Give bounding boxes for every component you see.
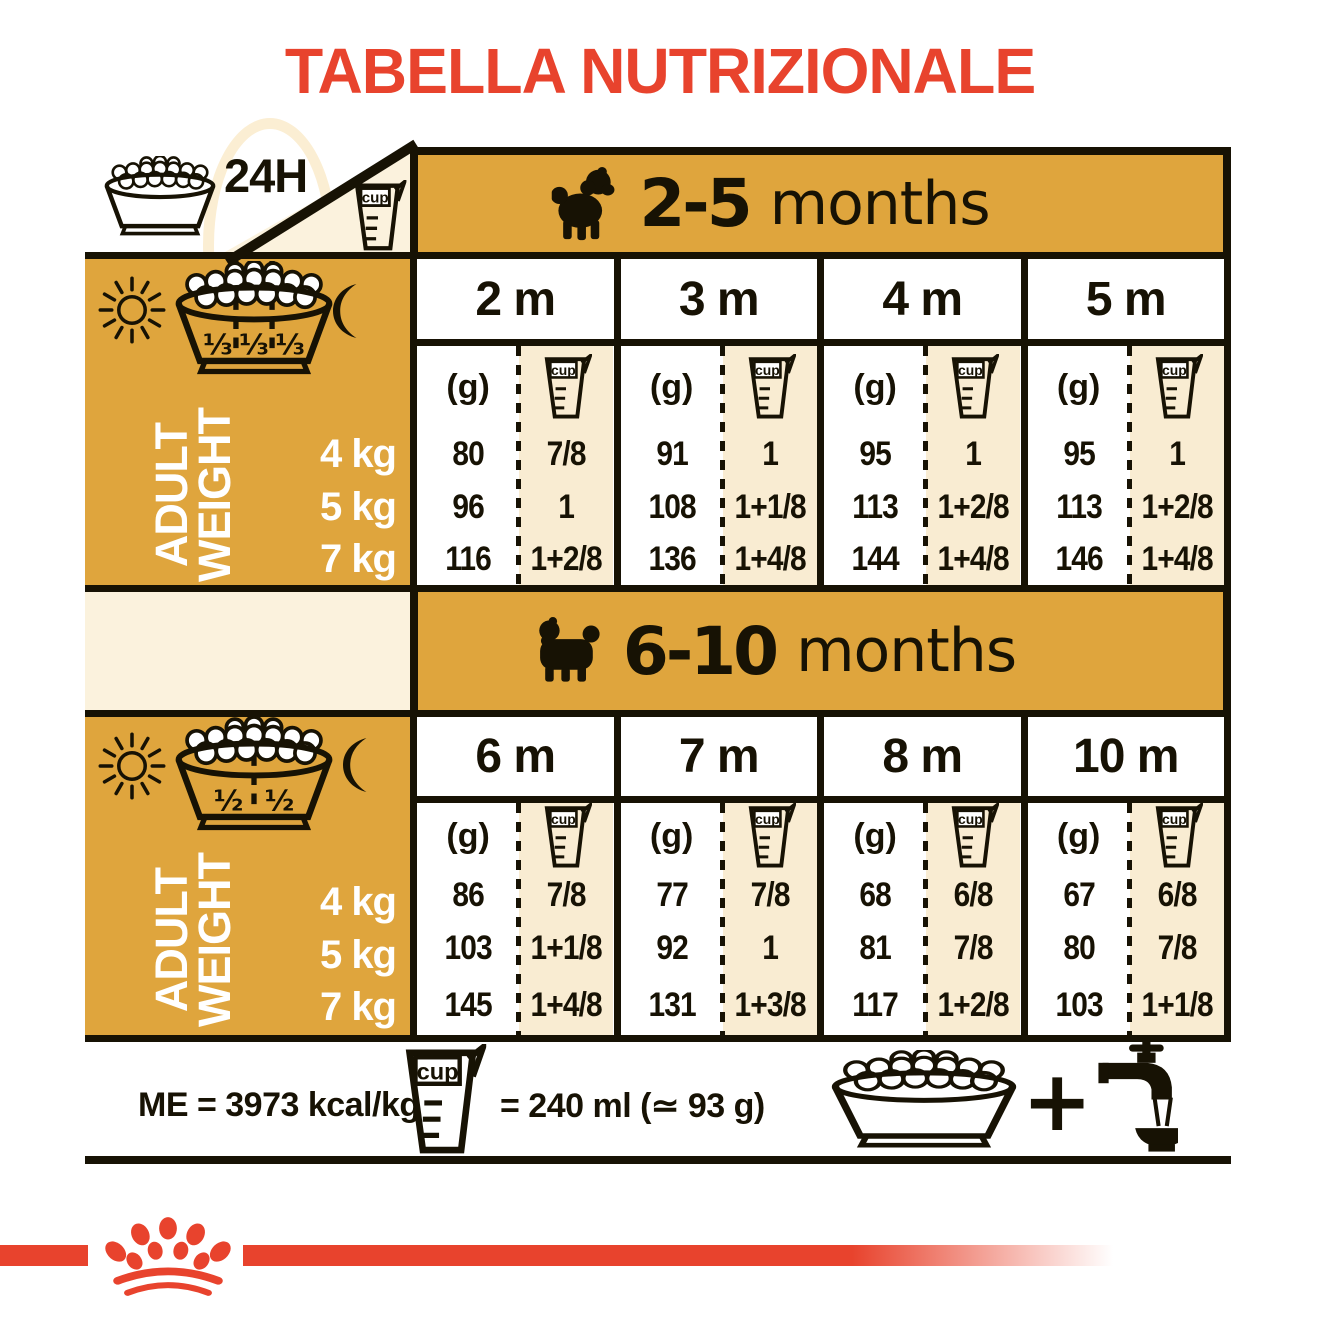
cups-value: 1+2/8 [932,975,1015,1035]
cups-value: 6/8 [932,869,1015,922]
measuring-cup-icon [396,1044,488,1156]
adult-weight-line2: WEIGHT [194,850,237,1030]
grams-value: 131 [627,975,717,1035]
grams-value: 145 [423,975,513,1035]
water-tap-icon [1076,1038,1178,1156]
grams-value: 108 [627,481,717,534]
cups-value: 1+2/8 [932,481,1015,534]
grams-unit-label: (g) [621,346,723,428]
month-header: 6 m [417,717,614,803]
weight-row-label: 7 kg [320,986,396,1028]
weight-row-label: 4 kg [320,433,396,475]
cups-value: 1+1/8 [525,922,608,975]
measuring-cup-icon [743,803,797,869]
cups-value: 1+2/8 [1135,481,1218,534]
measuring-cup-icon [1150,803,1204,869]
measuring-cup-icon [349,180,407,252]
cups-value: 1+2/8 [525,534,608,585]
grams-value: 113 [1034,481,1124,534]
cups-value: 1 [728,428,811,481]
kibble-bowl-icon [824,1050,1024,1158]
cups-value: 7/8 [728,869,811,922]
cups-value: 1 [728,922,811,975]
grams-value: 103 [423,922,513,975]
grams-value: 95 [830,428,920,481]
page-title: TABELLA NUTRIZIONALE [13,34,1307,108]
grams-value: 81 [830,922,920,975]
sun-icon [95,729,169,803]
24h-bowl-icon [100,156,220,244]
measuring-cup-icon [946,803,1000,869]
metabolizable-energy-label: ME = 3973 kcal/kg [138,1086,420,1125]
cups-value: 7/8 [932,922,1015,975]
cups-value: 1 [1135,428,1218,481]
portion-bowl-halves-icon: ½ ½ [169,717,339,853]
age-range-unit: months [770,169,990,239]
sun-icon [95,273,169,347]
cups-value: 1 [932,428,1015,481]
puppy-silhouette-icon [551,166,619,242]
age-range-bold: 6-10 [623,613,776,690]
cups-value: 1+4/8 [1135,534,1218,585]
moon-icon [333,283,378,339]
month-column: 2 m (g) 80 96 116 7/8 1 1+2/8 [417,259,614,585]
adult-weight-line2: WEIGHT [194,405,237,585]
weight-row-label: 4 kg [320,881,396,923]
month-header: 8 m [824,717,1021,803]
cups-value: 7/8 [1135,922,1218,975]
measuring-cup-icon [539,354,593,420]
grams-unit-label: (g) [1028,803,1130,869]
brand-bar-left [0,1245,88,1266]
month-header: 10 m [1028,717,1225,803]
adult-weight-line1: ADULT [151,850,194,1030]
grams-value: 95 [1034,428,1124,481]
grams-value: 96 [423,481,513,534]
month-column: 5 m (g) 95 113 146 1 1+2/8 1+4/8 [1021,259,1225,585]
grams-value: 80 [423,428,513,481]
adult-weight-panel-2: ½ ½ ADULT WEIGHT 4 kg 5 kg 7 kg [85,710,410,1042]
weight-row-label: 7 kg [320,538,396,580]
bowl-fraction: ½ [214,784,244,818]
grams-value: 67 [1034,869,1124,922]
grams-value: 146 [1034,534,1124,585]
adult-weight-label: ADULT WEIGHT [151,405,243,585]
age-band-6-10-months: 6-10 months [410,592,1231,710]
cups-value: 1+1/8 [1135,975,1218,1035]
grams-value: 80 [1034,922,1124,975]
adult-dog-silhouette-icon [535,616,603,686]
cups-value: 1+4/8 [525,975,608,1035]
cups-value: 6/8 [1135,869,1218,922]
grams-unit-label: (g) [824,803,926,869]
bowl-fraction: ⅓ [275,328,305,362]
month-header: 7 m [621,717,818,803]
royal-canin-crown-icon [94,1212,242,1298]
grams-value: 103 [1034,975,1124,1035]
band-left-cream-spacer [85,592,410,710]
grams-unit-label: (g) [621,803,723,869]
month-column: 10 m (g) 67 80 103 6/8 7/8 1+1/8 [1021,717,1225,1035]
grams-value: 136 [627,534,717,585]
month-column: 3 m (g) 91 108 136 1 1+1/8 1+4/8 [614,259,818,585]
grams-unit-label: (g) [1028,346,1130,428]
adult-weight-panel-1: ⅓ ⅓ ⅓ ADULT WEIGHT 4 kg 5 kg 7 kg [85,252,410,592]
grams-value: 68 [830,869,920,922]
grams-value: 91 [627,428,717,481]
month-column: 7 m (g) 77 92 131 7/8 1 1+3/8 [614,717,818,1035]
measuring-cup-icon [1150,354,1204,420]
measuring-cup-icon [743,354,797,420]
month-column: 8 m (g) 68 81 117 6/8 7/8 1+2/8 [817,717,1021,1035]
grams-value: 144 [830,534,920,585]
grams-value: 113 [830,481,920,534]
month-column: 6 m (g) 86 103 145 7/8 1+1/8 1+4/8 [417,717,614,1035]
cups-value: 1+4/8 [932,534,1015,585]
cups-value: 1 [525,481,608,534]
bowl-fraction: ⅓ [239,328,269,362]
moon-icon [343,737,388,793]
grams-value: 117 [830,975,920,1035]
grams-value: 77 [627,869,717,922]
month-column: 4 m (g) 95 113 144 1 1+2/8 1+4/8 [817,259,1021,585]
age-range-unit: months [796,616,1016,686]
cups-value: 1+4/8 [728,534,811,585]
bowl-fraction: ⅓ [203,328,233,362]
measuring-cup-icon [946,354,1000,420]
cups-value: 7/8 [525,428,608,481]
feeding-table-2-5-months: 2 m (g) 80 96 116 7/8 1 1+2/8 3 m (g) 91… [410,252,1231,592]
brand-bar-right-fade [243,1245,1113,1266]
bowl-fraction: ½ [265,784,295,818]
month-header: 4 m [824,259,1021,346]
grams-value: 92 [627,922,717,975]
portion-bowl-thirds-icon: ⅓ ⅓ ⅓ [169,261,339,397]
grams-value: 86 [423,869,513,922]
adult-weight-label: ADULT WEIGHT [151,850,243,1030]
adult-weight-line1: ADULT [151,405,194,585]
month-header: 5 m [1028,259,1225,346]
grams-unit-label: (g) [417,803,519,869]
grams-value: 116 [423,534,513,585]
cups-value: 1+1/8 [728,481,811,534]
cups-value: 1+3/8 [728,975,811,1035]
month-header: 2 m [417,259,614,346]
weight-row-label: 5 kg [320,486,396,528]
grams-unit-label: (g) [824,346,926,428]
cups-value: 7/8 [525,869,608,922]
footer-divider-rule [85,1156,1231,1164]
age-range-bold: 2-5 [639,165,749,242]
age-band-2-5-months: 2-5 months [410,147,1231,252]
measuring-cup-icon [539,803,593,869]
month-header: 3 m [621,259,818,346]
cup-equivalence-label: = 240 ml (≃ 93 g) [500,1086,765,1126]
feeding-table-6-10-months: 6 m (g) 86 103 145 7/8 1+1/8 1+4/8 7 m (… [410,710,1231,1042]
weight-row-label: 5 kg [320,934,396,976]
grams-unit-label: (g) [417,346,519,428]
